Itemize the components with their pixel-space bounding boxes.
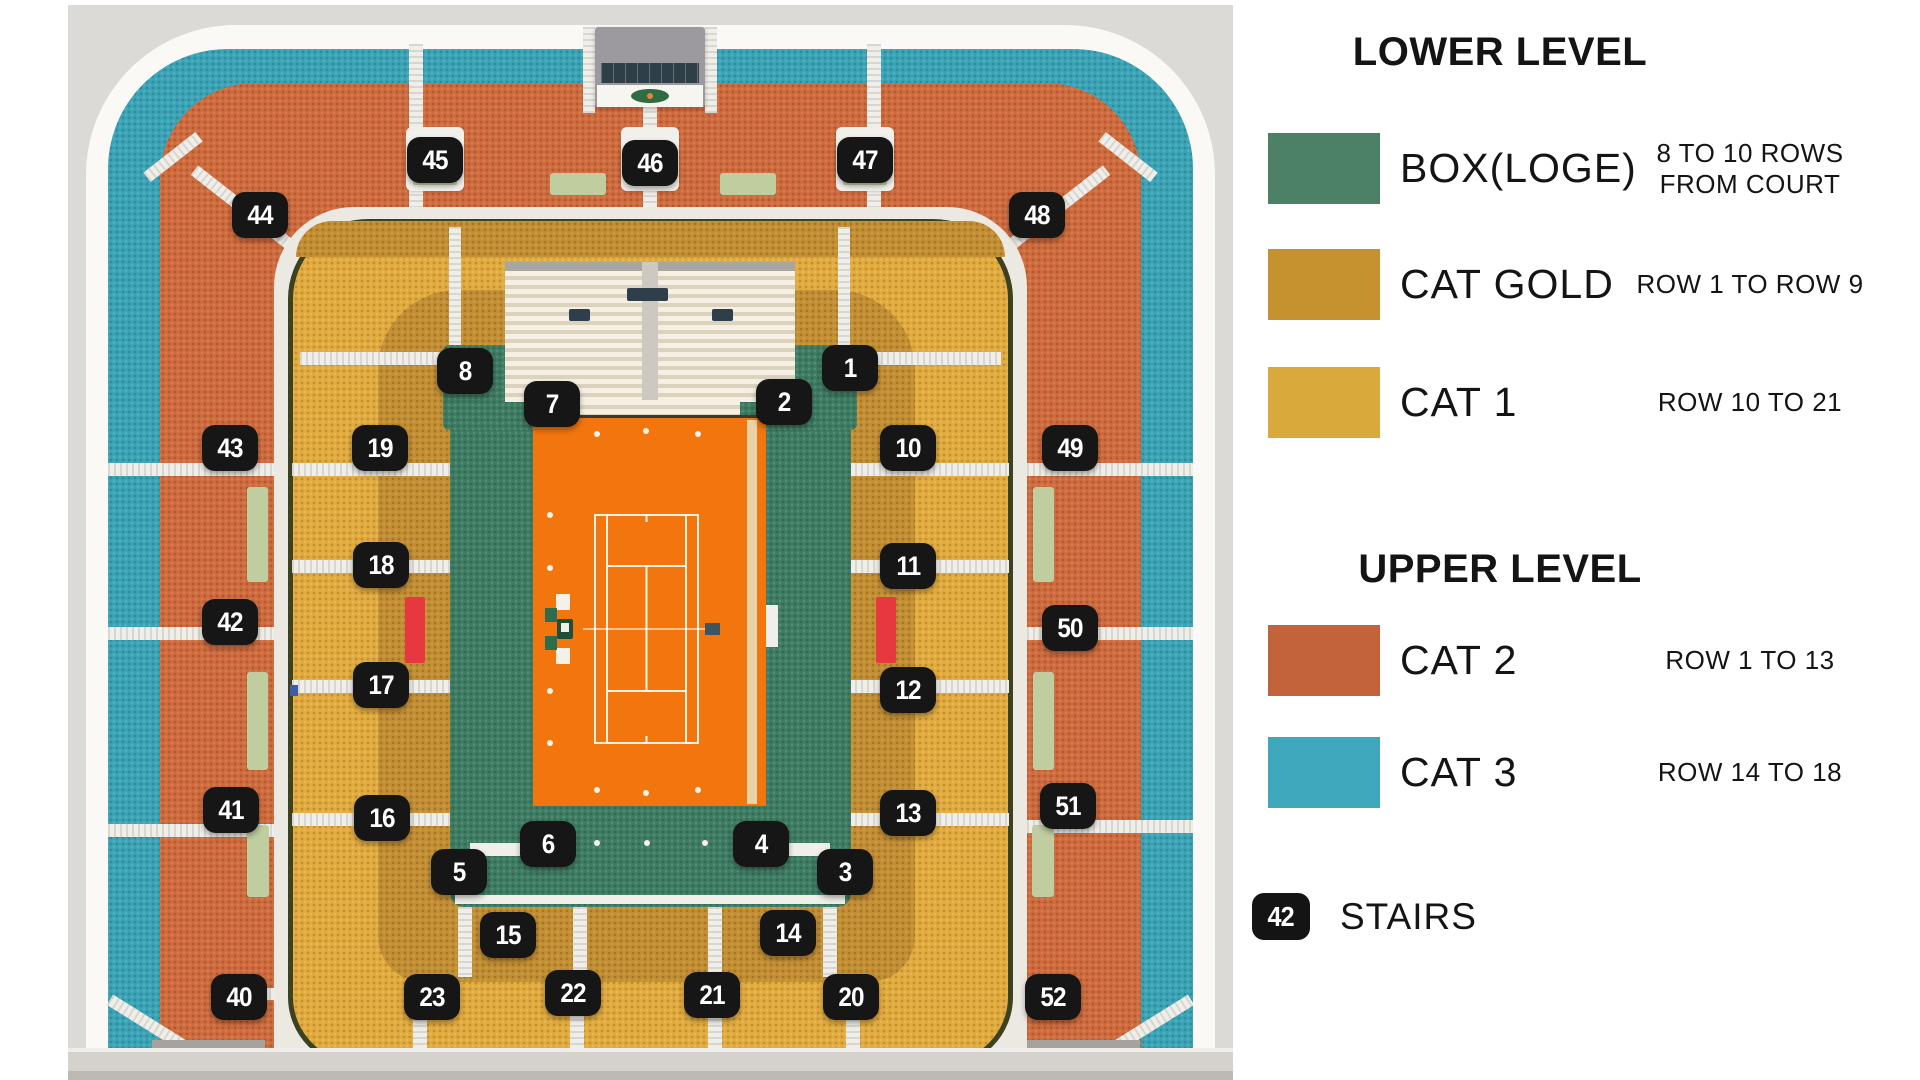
section-badge-51: 51 bbox=[1040, 783, 1096, 829]
section-badge-15: 15 bbox=[480, 912, 536, 958]
section-badge-12: 12 bbox=[880, 667, 936, 713]
section-number: 2 bbox=[778, 387, 791, 418]
section-number: 4 bbox=[755, 829, 768, 860]
wheelchair-platform bbox=[247, 487, 268, 582]
section-number: 17 bbox=[368, 670, 393, 701]
cat-gold-desc: ROW 1 TO ROW 9 bbox=[1625, 249, 1875, 320]
section-badge-49: 49 bbox=[1042, 425, 1098, 471]
net-camera bbox=[705, 623, 720, 635]
cat-gold-top-strip bbox=[296, 221, 1005, 257]
section-number: 3 bbox=[839, 857, 852, 888]
camera-deck bbox=[569, 309, 590, 321]
aisle bbox=[823, 907, 837, 977]
legend: LOWER LEVEL BOX(LOGE) 8 TO 10 ROWS FROM … bbox=[1240, 0, 1920, 1080]
section-badge-2: 2 bbox=[756, 379, 812, 425]
section-number: 19 bbox=[367, 433, 392, 464]
section-badge-52: 52 bbox=[1025, 974, 1081, 1020]
player-bench bbox=[545, 636, 557, 650]
legend-row-cat-gold: CAT GOLD ROW 1 TO ROW 9 bbox=[1240, 249, 1920, 320]
cat2-desc: ROW 1 TO 13 bbox=[1625, 625, 1875, 696]
aisle bbox=[583, 27, 595, 113]
aisle bbox=[573, 907, 587, 977]
section-number: 14 bbox=[775, 918, 800, 949]
upper-level-title: UPPER LEVEL bbox=[1240, 547, 1760, 592]
section-number: 45 bbox=[422, 145, 447, 176]
section-badge-14: 14 bbox=[760, 910, 816, 956]
section-number: 6 bbox=[542, 829, 555, 860]
wheelchair-platform bbox=[550, 173, 606, 195]
cat3-desc-line1: ROW 14 TO 18 bbox=[1658, 757, 1842, 788]
aisle bbox=[108, 627, 292, 640]
aisle bbox=[838, 227, 850, 349]
section-badge-17: 17 bbox=[353, 662, 409, 708]
stairs-badge: 42 bbox=[1252, 893, 1310, 940]
court-attendant-dot bbox=[644, 840, 650, 846]
section-number: 11 bbox=[896, 551, 920, 582]
section-badge-1: 1 bbox=[822, 345, 878, 391]
section-badge-7: 7 bbox=[524, 381, 580, 427]
aisle bbox=[705, 27, 717, 113]
aisle bbox=[1009, 463, 1193, 476]
cat3-swatch bbox=[1268, 737, 1380, 808]
box-swatch bbox=[1268, 133, 1380, 204]
legend-row-cat2: CAT 2 ROW 1 TO 13 bbox=[1240, 625, 1920, 696]
south-wall bbox=[68, 1048, 1233, 1080]
section-badge-11: 11 bbox=[880, 543, 936, 589]
section-badge-22: 22 bbox=[545, 970, 601, 1016]
section-badge-43: 43 bbox=[202, 425, 258, 471]
cat3-label: CAT 3 bbox=[1400, 737, 1630, 808]
lower-level-title: LOWER LEVEL bbox=[1240, 30, 1760, 75]
wheelchair-platform bbox=[720, 173, 776, 195]
cat1-desc-line1: ROW 10 TO 21 bbox=[1658, 387, 1842, 418]
section-badge-20: 20 bbox=[823, 974, 879, 1020]
section-number: 50 bbox=[1057, 613, 1082, 644]
section-number: 15 bbox=[495, 920, 520, 951]
stairs-label: STAIRS bbox=[1340, 893, 1477, 940]
box-desc: 8 TO 10 ROWS FROM COURT bbox=[1625, 133, 1875, 204]
section-badge-23: 23 bbox=[404, 974, 460, 1020]
section-badge-40: 40 bbox=[211, 974, 267, 1020]
section-badge-44: 44 bbox=[232, 192, 288, 238]
section-badge-47: 47 bbox=[837, 137, 893, 183]
aisle bbox=[449, 227, 461, 349]
seating-chart-page: 1234567810111213141516171819202122234041… bbox=[0, 0, 1920, 1080]
section-number: 48 bbox=[1024, 200, 1049, 231]
walkway bbox=[455, 895, 845, 904]
section-badge-41: 41 bbox=[203, 787, 259, 833]
section-badge-48: 48 bbox=[1009, 192, 1065, 238]
cat2-desc-line1: ROW 1 TO 13 bbox=[1665, 645, 1834, 676]
wheelchair-platform bbox=[1033, 487, 1054, 582]
section-badge-5: 5 bbox=[431, 849, 487, 895]
section-badge-18: 18 bbox=[353, 542, 409, 588]
section-number: 5 bbox=[453, 857, 466, 888]
legend-row-cat3: CAT 3 ROW 14 TO 18 bbox=[1240, 737, 1920, 808]
stairs-badge-number: 42 bbox=[1268, 901, 1294, 933]
cat1-desc: ROW 10 TO 21 bbox=[1625, 367, 1875, 438]
section-number: 44 bbox=[247, 200, 272, 231]
section-badge-4: 4 bbox=[733, 821, 789, 867]
wheelchair-platform bbox=[1032, 825, 1054, 897]
section-number: 1 bbox=[844, 353, 857, 384]
section-badge-8: 8 bbox=[437, 348, 493, 394]
clay-court bbox=[533, 415, 766, 806]
press-seats bbox=[876, 597, 896, 663]
umpire-seat bbox=[561, 623, 569, 632]
section-number: 7 bbox=[546, 389, 559, 420]
section-badge-16: 16 bbox=[354, 795, 410, 841]
court-attendant-dot bbox=[702, 840, 708, 846]
section-number: 40 bbox=[226, 982, 251, 1013]
scoreboard bbox=[595, 27, 705, 107]
box-label: BOX(LOGE) bbox=[1400, 133, 1630, 204]
wheelchair-platform bbox=[247, 825, 269, 897]
roland-garros-logo bbox=[631, 89, 669, 103]
cat-gold-desc-line1: ROW 1 TO ROW 9 bbox=[1636, 269, 1863, 300]
section-badge-46: 46 bbox=[622, 140, 678, 186]
section-number: 12 bbox=[895, 675, 920, 706]
court-lines-svg bbox=[533, 418, 766, 806]
section-number: 18 bbox=[368, 550, 393, 581]
cat3-desc: ROW 14 TO 18 bbox=[1625, 737, 1875, 808]
section-number: 20 bbox=[838, 982, 863, 1013]
section-badge-50: 50 bbox=[1042, 605, 1098, 651]
linesman-walkway bbox=[747, 420, 757, 804]
cat-gold-swatch bbox=[1268, 249, 1380, 320]
wheelchair-platform bbox=[1033, 672, 1054, 770]
gate-marker bbox=[290, 685, 298, 696]
tribune-aisle bbox=[642, 262, 658, 402]
wheelchair-platform bbox=[247, 672, 268, 770]
aisle bbox=[300, 352, 450, 365]
legend-row-cat1: CAT 1 ROW 10 TO 21 bbox=[1240, 367, 1920, 438]
section-number: 21 bbox=[699, 980, 724, 1011]
section-number: 42 bbox=[217, 607, 242, 638]
aisle bbox=[108, 463, 292, 476]
kit-box bbox=[556, 648, 570, 664]
ballkid-dots bbox=[547, 428, 701, 796]
section-badge-13: 13 bbox=[880, 790, 936, 836]
section-number: 41 bbox=[218, 795, 243, 826]
section-badge-21: 21 bbox=[684, 972, 740, 1018]
section-badge-10: 10 bbox=[880, 425, 936, 471]
section-badge-6: 6 bbox=[520, 821, 576, 867]
box-desc-line2: FROM COURT bbox=[1660, 169, 1841, 200]
cat1-swatch bbox=[1268, 367, 1380, 438]
section-number: 8 bbox=[459, 356, 472, 387]
section-number: 51 bbox=[1055, 791, 1080, 822]
section-number: 43 bbox=[217, 433, 242, 464]
camera-deck bbox=[712, 309, 733, 321]
player-bench bbox=[545, 608, 557, 622]
scoreboard-banner bbox=[597, 85, 703, 107]
section-number: 46 bbox=[637, 148, 662, 179]
section-number: 49 bbox=[1057, 433, 1082, 464]
legend-row-box: BOX(LOGE) 8 TO 10 ROWS FROM COURT bbox=[1240, 133, 1920, 204]
stadium-map: 1234567810111213141516171819202122234041… bbox=[68, 5, 1233, 1080]
aisle bbox=[708, 907, 722, 977]
section-number: 22 bbox=[560, 978, 585, 1009]
section-badge-19: 19 bbox=[352, 425, 408, 471]
section-badge-45: 45 bbox=[407, 137, 463, 183]
section-number: 52 bbox=[1040, 982, 1065, 1013]
section-number: 23 bbox=[419, 982, 444, 1013]
camera-deck bbox=[627, 288, 668, 301]
section-number: 10 bbox=[895, 433, 920, 464]
section-number: 13 bbox=[895, 798, 920, 829]
cat1-label: CAT 1 bbox=[1400, 367, 1630, 438]
scoreboard-screen bbox=[601, 63, 699, 83]
press-seats bbox=[405, 597, 425, 663]
aisle bbox=[1009, 627, 1193, 640]
section-badge-3: 3 bbox=[817, 849, 873, 895]
cat2-label: CAT 2 bbox=[1400, 625, 1630, 696]
box-desc-line1: 8 TO 10 ROWS bbox=[1656, 138, 1843, 169]
section-number: 47 bbox=[852, 145, 877, 176]
section-number: 16 bbox=[369, 803, 394, 834]
cat-gold-label: CAT GOLD bbox=[1400, 249, 1630, 320]
cat2-swatch bbox=[1268, 625, 1380, 696]
aisle bbox=[458, 907, 472, 977]
court-attendant-dot bbox=[594, 840, 600, 846]
kit-box bbox=[556, 594, 570, 610]
section-badge-42: 42 bbox=[202, 599, 258, 645]
legend-stairs-row: 42 STAIRS bbox=[1240, 893, 1920, 941]
